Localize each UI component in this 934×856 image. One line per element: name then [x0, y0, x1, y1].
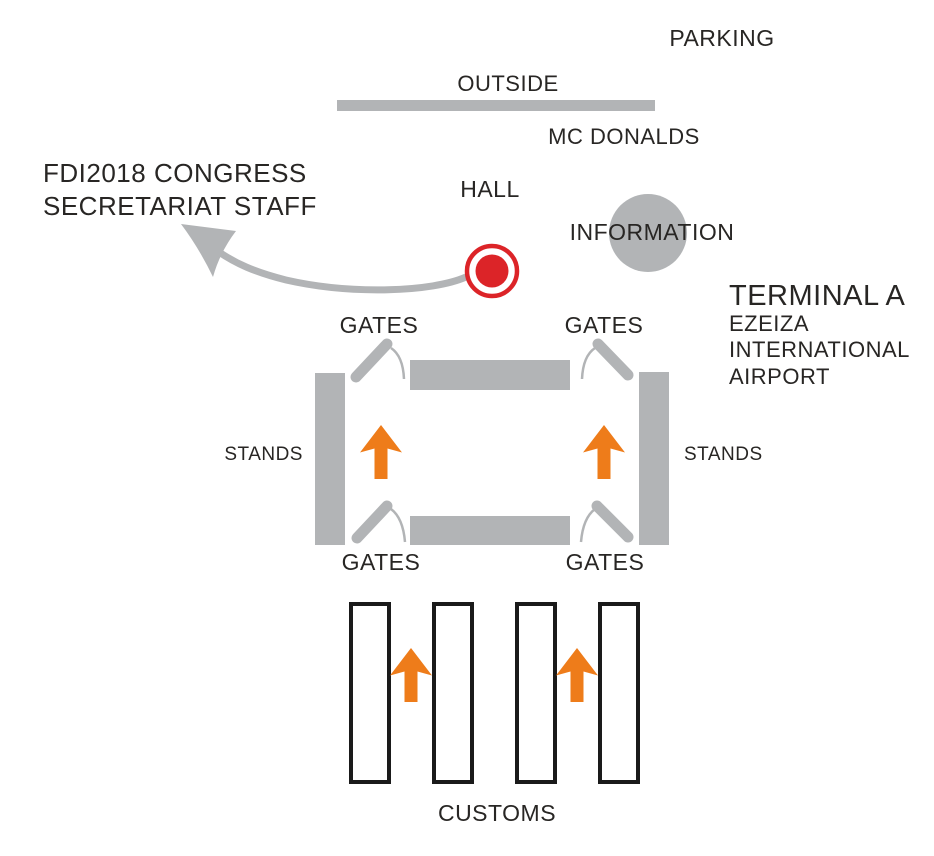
airport-name-line2: INTERNATIONAL	[729, 337, 910, 362]
secretariat-label-line1: FDI2018 CONGRESS	[43, 158, 307, 188]
direction-arrow-customs-right-icon	[556, 648, 598, 702]
gate-swing-arc-top-left-icon	[391, 348, 404, 379]
terminal-wall-bottom	[410, 516, 570, 545]
gates-label-bottom-right: GATES	[566, 549, 645, 575]
gate-door-bottom-left-icon	[357, 506, 387, 538]
customs-lane-2	[434, 604, 472, 782]
gate-swing-arc-bottom-right-icon	[581, 509, 595, 542]
customs-lane-3	[517, 604, 555, 782]
gates-label-bottom-left: GATES	[342, 549, 421, 575]
direction-arrow-terminal-right-icon	[583, 425, 625, 479]
airport-wayfinding-map: PARKING OUTSIDE MC DONALDS HALL INFORMAT…	[0, 0, 934, 856]
stands-label-right: STANDS	[684, 444, 763, 465]
terminal-wall-top	[410, 360, 570, 390]
gates-label-top-left: GATES	[340, 312, 419, 338]
airport-name-line1: EZEIZA	[729, 311, 809, 336]
gate-swing-arc-bottom-left-icon	[391, 509, 405, 542]
gates-label-top-right: GATES	[565, 312, 644, 338]
mcdonalds-label: MC DONALDS	[548, 124, 700, 149]
outside-label: OUTSIDE	[457, 71, 558, 96]
secretariat-label-line2: SECRETARIAT STAFF	[43, 191, 317, 221]
meeting-point-dot-icon	[476, 255, 509, 288]
direction-arrow-customs-left-icon	[390, 648, 432, 702]
gate-door-top-right-icon	[598, 344, 628, 375]
route-curve-icon	[219, 252, 466, 290]
direction-arrow-terminal-left-icon	[360, 425, 402, 479]
hall-label: HALL	[460, 176, 520, 202]
outside-wall-bar	[337, 100, 655, 111]
airport-name-line3: AIRPORT	[729, 364, 830, 389]
gate-door-bottom-right-icon	[597, 506, 628, 537]
information-label: INFORMATION	[570, 219, 735, 245]
terminal-name-label: TERMINAL A	[729, 280, 906, 312]
customs-lane-1	[351, 604, 389, 782]
stand-bar-right	[639, 372, 669, 545]
gate-door-top-left-icon	[356, 344, 387, 377]
gate-swing-arc-top-right-icon	[582, 348, 595, 379]
customs-lane-4	[600, 604, 638, 782]
stands-label-left: STANDS	[224, 444, 303, 465]
terminal-map-svg: PARKING OUTSIDE MC DONALDS HALL INFORMAT…	[0, 0, 934, 856]
stand-bar-left	[315, 373, 345, 545]
customs-label: CUSTOMS	[438, 800, 556, 826]
route-arrowhead-icon	[181, 224, 236, 277]
parking-label: PARKING	[669, 25, 774, 51]
